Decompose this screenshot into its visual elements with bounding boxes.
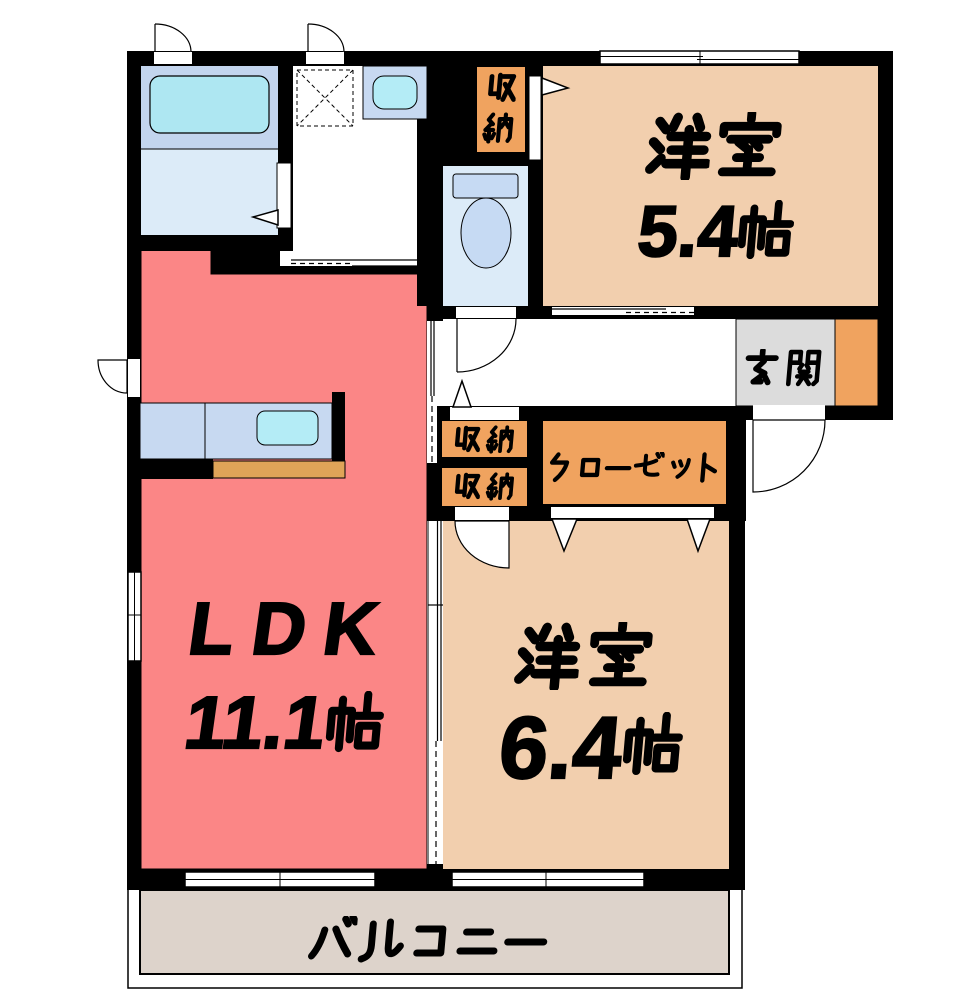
svg-text:LDK: LDK	[184, 587, 402, 670]
svg-text:11.1: 11.1	[180, 681, 332, 764]
svg-text:6.4: 6.4	[495, 698, 626, 797]
svg-text:5.4: 5.4	[635, 192, 742, 272]
